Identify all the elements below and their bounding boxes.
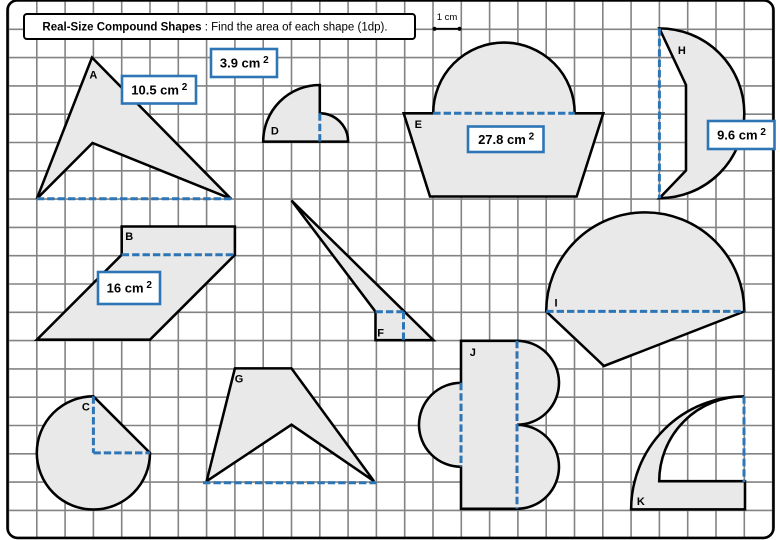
svg-text:B: B (125, 231, 133, 243)
svg-text:I: I (554, 298, 557, 310)
svg-text:Real-Size Compound Shapes : Fi: Real-Size Compound Shapes : Find the are… (42, 22, 387, 34)
svg-text:J: J (470, 347, 476, 359)
svg-text:H: H (678, 45, 686, 57)
svg-text:K: K (637, 496, 645, 508)
svg-text:G: G (235, 374, 244, 386)
svg-text:1 cm: 1 cm (437, 12, 458, 23)
svg-text:D: D (271, 126, 279, 138)
svg-text:A: A (89, 70, 97, 82)
svg-text:C: C (82, 402, 90, 414)
svg-text:E: E (415, 119, 422, 131)
svg-text:F: F (377, 328, 384, 340)
